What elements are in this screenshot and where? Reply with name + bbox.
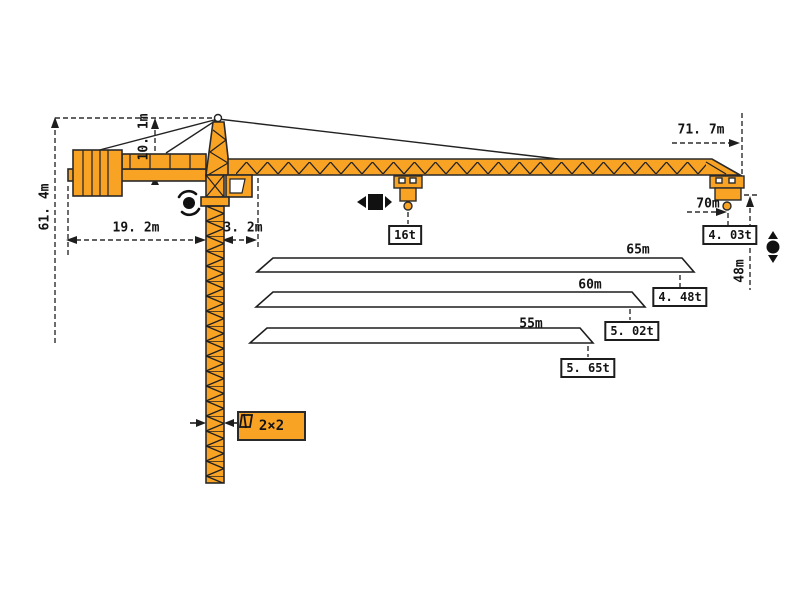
tower-section-box: 2×2	[237, 411, 306, 441]
slewing-icon-arc-top	[179, 191, 196, 197]
hoist-icon-down-arrow	[768, 255, 778, 263]
trolley-icon	[357, 194, 392, 210]
trolley-wheel	[410, 178, 416, 183]
slewing-icon-arc-bottom	[182, 209, 199, 215]
hoist-icon	[767, 231, 780, 263]
trolley-frame	[710, 176, 744, 188]
tip-load-box-55m: 5. 65t	[560, 358, 615, 378]
apex-pulley	[215, 115, 222, 122]
mast-head	[206, 115, 230, 176]
trolley-wheel	[399, 178, 405, 183]
trolley-icon-body	[368, 194, 383, 210]
trolley-icon-right-arrow	[385, 196, 392, 208]
dim-jib-length: 71. 7m	[678, 123, 725, 138]
arrow-up-head-height	[151, 118, 159, 129]
arrow-right-pivot	[246, 236, 257, 244]
slewing-icon	[179, 191, 199, 215]
crane-diagram: 61. 4m 10. 1m 19. 2m 3. 2m 71. 7m 70m 48…	[0, 0, 800, 600]
trolley-icon-left-arrow	[357, 196, 366, 208]
jib-option-65m	[257, 258, 694, 272]
hook	[404, 202, 412, 210]
tip-load-box-65m: 4. 48t	[652, 287, 707, 307]
dim-tower-offset: 3. 2m	[223, 221, 262, 236]
counterweight-block	[73, 150, 122, 196]
tower-section-label: 2×2	[259, 418, 284, 434]
dim-hook-height: 48m	[733, 259, 748, 282]
dim-head-height: 10. 1m	[137, 114, 152, 161]
hook	[723, 202, 731, 210]
jib-option-60m	[256, 292, 645, 307]
tie-rod-jib	[218, 119, 575, 161]
arrow-up-hook-height	[746, 196, 754, 207]
arrow-right-section	[196, 419, 206, 427]
trolley-frame	[394, 176, 422, 188]
hook-block	[400, 188, 416, 201]
section-icon	[239, 413, 254, 429]
dim-counter-jib: 19. 2m	[113, 221, 160, 236]
jib-option-label-65m: 65m	[626, 243, 649, 258]
trolley-wheel	[729, 178, 735, 183]
hoist-icon-dot	[767, 241, 780, 254]
counterjib-top-band	[122, 154, 206, 169]
arrow-right-jib-length	[729, 139, 740, 147]
arrow-right-counterjib	[195, 236, 206, 244]
max-load-box: 16t	[388, 225, 422, 245]
dim-tip-radius: 70m	[696, 197, 719, 212]
mid-trolley	[394, 176, 422, 210]
cab-window	[230, 179, 245, 193]
jib-option-label-55m: 55m	[519, 317, 542, 332]
jib-lattice	[236, 162, 706, 174]
dim-total-height: 61. 4m	[38, 184, 53, 231]
main-jib	[228, 159, 740, 175]
turntable-collar	[201, 197, 229, 206]
hoist-icon-up-arrow	[768, 231, 778, 239]
tip-load-box-70m: 4. 03t	[702, 225, 757, 245]
tip-load-box-60m: 5. 02t	[604, 321, 659, 341]
arrow-left-section	[224, 419, 234, 427]
tower-mast-lattice	[206, 206, 224, 483]
mast-head-body	[206, 122, 230, 175]
jib-option-label-60m: 60m	[578, 278, 601, 293]
trolley-wheel	[716, 178, 722, 183]
slewing-icon-dot	[183, 197, 195, 209]
